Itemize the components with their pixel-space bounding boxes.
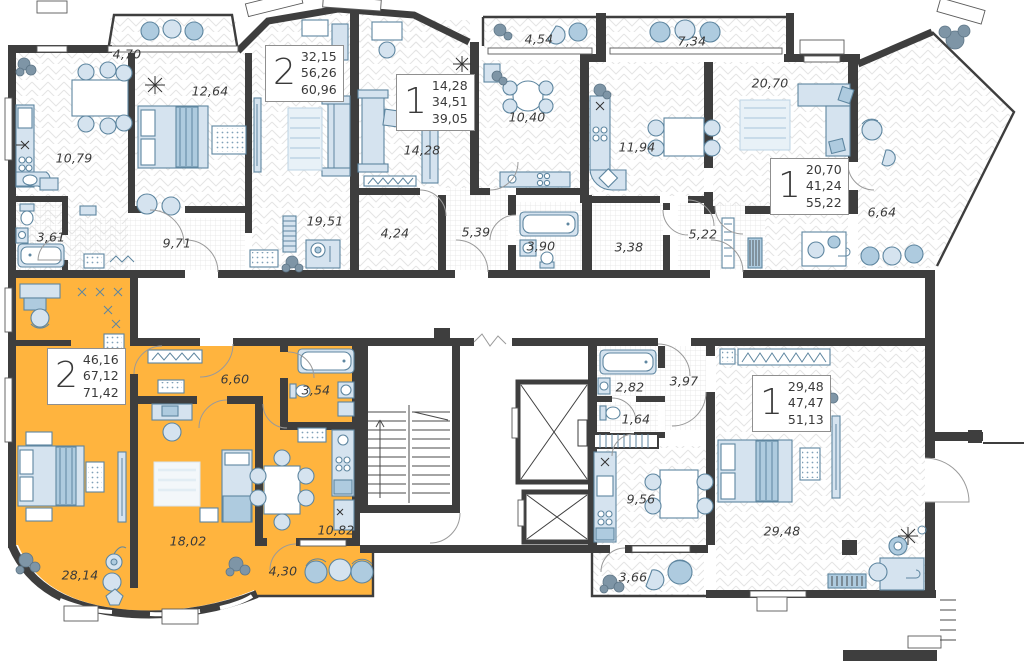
radiator-icon xyxy=(364,176,416,186)
tv-icon xyxy=(118,452,126,522)
dining-table-icon xyxy=(72,62,132,134)
room-area-label: 14,28 xyxy=(404,143,441,158)
apartment-area: 34,51 xyxy=(432,94,468,110)
room-area-label: 6,64 xyxy=(868,205,897,220)
elevator-icon xyxy=(518,492,590,542)
shelf-icon xyxy=(283,216,296,252)
wardrobe-icon xyxy=(212,126,246,154)
apartment-info-top-middle[interactable]: 1 14,28 34,51 39,05 xyxy=(396,74,475,131)
room-area-label: 19,51 xyxy=(307,214,344,229)
floorplan-page: 4,7012,6410,793,619,7119,5114,284,5410,4… xyxy=(0,0,1024,661)
room-area-label: 18,02 xyxy=(170,534,207,549)
rug-icon xyxy=(154,462,200,506)
apartment-info-top-left[interactable]: 2 32,15 56,26 60,96 xyxy=(265,45,344,102)
room-area-label: 5,22 xyxy=(689,227,718,242)
apartment-rooms-count: 1 xyxy=(404,84,427,120)
apartment-rooms-count: 2 xyxy=(55,358,78,394)
balcony-chairs-icon xyxy=(141,20,203,40)
room-area-label: 6,60 xyxy=(221,372,250,387)
room-area-label: 3,54 xyxy=(302,383,331,398)
apartment-total-area: 60,96 xyxy=(301,82,337,98)
vent-shaft xyxy=(594,434,658,448)
apartment-living-area: 46,16 xyxy=(83,352,119,368)
apartment-living-area: 32,15 xyxy=(301,49,337,65)
desk-icon xyxy=(802,232,850,266)
room-area-label: 3,97 xyxy=(670,374,699,389)
apartment-info-top-right[interactable]: 1 20,70 41,24 55,22 xyxy=(770,158,849,215)
bathtub-icon xyxy=(298,349,354,373)
bed-icon xyxy=(138,106,208,168)
apartment-total-area: 55,22 xyxy=(806,195,842,211)
apartment-info-highlighted[interactable]: 2 46,16 67,12 71,42 xyxy=(47,348,126,405)
room-area-label: 2,82 xyxy=(616,380,645,395)
room-area-label: 9,56 xyxy=(627,492,656,507)
room-area-label: 20,70 xyxy=(752,76,789,91)
balcony-chairs-icon xyxy=(305,559,373,583)
ceiling-lamp-icon xyxy=(453,56,471,72)
room-area-label: 4,24 xyxy=(381,226,410,241)
sink-icon xyxy=(16,228,28,243)
toilet-icon xyxy=(540,252,554,268)
room-area-label: 7,34 xyxy=(678,34,707,49)
apartment-living-area: 20,70 xyxy=(806,162,842,178)
apartment-living-area: 14,28 xyxy=(432,78,468,94)
apartment-rooms-count: 1 xyxy=(778,168,801,204)
apartment-area: 56,26 xyxy=(301,65,337,81)
toilet-icon xyxy=(20,204,34,225)
staircase xyxy=(368,405,450,503)
room-area-label: 12,64 xyxy=(192,84,229,99)
room-area-label: 5,39 xyxy=(462,225,491,240)
toilet-icon xyxy=(600,406,620,420)
apartment-rooms-count: 2 xyxy=(273,55,296,91)
apartment-total-area: 39,05 xyxy=(432,111,468,127)
room-area-label: 9,71 xyxy=(163,236,192,251)
apartment-area: 41,24 xyxy=(806,178,842,194)
room-area-label: 28,14 xyxy=(62,568,99,583)
room-area-label: 10,79 xyxy=(56,151,93,166)
elevator-icon xyxy=(512,382,590,482)
ceiling-lamp-icon xyxy=(145,76,165,94)
apartment-area: 67,12 xyxy=(83,368,119,384)
rug-icon xyxy=(288,108,322,170)
apartment-area: 47,47 xyxy=(788,395,824,411)
highlighted-apartment-floor[interactable] xyxy=(16,278,374,610)
apartment-living-area: 29,48 xyxy=(788,379,824,395)
bathtub-icon xyxy=(600,350,656,374)
room-area-label: 4,70 xyxy=(113,47,142,62)
apartment-rooms-count: 1 xyxy=(760,385,783,421)
room-area-label: 3,66 xyxy=(619,570,648,585)
bathtub-icon xyxy=(520,212,578,236)
apartment-total-area: 51,13 xyxy=(788,412,824,428)
tv-icon xyxy=(832,416,840,498)
sink-icon xyxy=(598,378,610,394)
apartment-info-bottom-right[interactable]: 1 29,48 47,47 51,13 xyxy=(752,375,831,432)
wardrobe-icon xyxy=(800,448,820,480)
room-area-label: 3,61 xyxy=(37,230,66,245)
floorplan-drawing xyxy=(0,0,1024,661)
room-area-label: 3,38 xyxy=(615,240,644,255)
room-area-label: 4,30 xyxy=(269,564,298,579)
bathtub-icon xyxy=(18,244,64,267)
kitchen-counter-icon xyxy=(594,452,616,542)
rug-icon xyxy=(740,100,790,150)
room-area-label: 3,90 xyxy=(527,239,556,254)
bed-icon xyxy=(718,440,792,502)
tv-icon xyxy=(254,98,261,172)
wardrobe-icon xyxy=(86,462,104,492)
room-area-label: 1,64 xyxy=(622,412,651,427)
room-area-label: 29,48 xyxy=(764,524,801,539)
room-area-label: 10,82 xyxy=(318,523,355,538)
room-area-label: 4,54 xyxy=(525,32,554,47)
apartment-total-area: 71,42 xyxy=(83,385,119,401)
room-area-label: 10,40 xyxy=(509,110,546,125)
room-area-label: 11,94 xyxy=(619,140,656,155)
